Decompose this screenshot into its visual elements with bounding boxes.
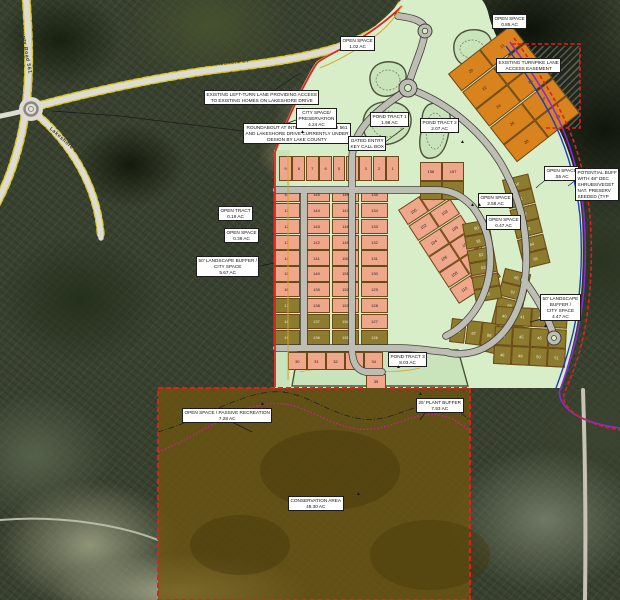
label-potential-buffer: POTENTIAL BUFFWITH 48" DECSHRUBS/VEGETNA… [575, 168, 619, 201]
label-pond-tract-3: POND TRACT 38.03 AC [388, 352, 427, 367]
label-open-space-ne: OPEN SPACE0.85 AC [492, 14, 527, 29]
label-pond-tract-2: POND TRACT 22.07 AC [420, 118, 459, 133]
label-plant-buffer: 25' PLANT BUFFER7.53 AC [416, 398, 464, 413]
label-open-space-sr: OPEN SPACE.55 AC [544, 166, 579, 181]
site-plan-map-canvas: 987654321 10111213141516171819 145144143… [0, 0, 620, 600]
tree-marker-icon: ▲ [356, 492, 361, 497]
tree-marker-icon: ▲ [470, 203, 475, 208]
tree-marker-icon: ▲ [396, 365, 401, 370]
label-open-space-passive: OPEN SPACE / PASSIVE RECREATION7.28 AC [182, 408, 272, 423]
tree-marker-icon: ▲ [543, 324, 548, 329]
label-conservation-area: CONSERVATION AREA48.30 AC [288, 496, 344, 511]
label-open-space-c1: OPEN SPACE2.58 AC [478, 193, 513, 208]
label-pond-tract-1: POND TRACT 11.98 AC [370, 112, 409, 127]
label-gated-entry: GATED ENTRYKEY CALL BOX [348, 136, 386, 151]
label-city-space: CITY SPACE/PRESERVATION4.24 AC [296, 108, 337, 129]
label-left-turn-note: EXISTING LEFT-TURN LANE PROVIDING ACCESS… [204, 90, 319, 105]
tree-marker-icon: ▲ [477, 203, 482, 208]
tree-marker-icon: ▲ [260, 402, 265, 407]
tree-marker-icon: ▲ [300, 130, 305, 135]
label-open-space-left: OPEN SPACE0.39 AC [224, 228, 259, 243]
label-open-tract: OPEN TRACT0.19 AC [218, 206, 253, 221]
label-open-space-nw: OPEN SPACE1.02 AC [340, 36, 375, 51]
tree-marker-icon: ▲ [418, 392, 423, 397]
label-buffer-right: 50' LANDSCAPEBUFFER /CITY SPACE4.47 AC [540, 294, 581, 321]
label-buffer-left: 50' LANDSCAPE BUFFER /CITY SPACE5.67 AC [196, 256, 259, 277]
label-turnpike-easement: EXISTING TURNPIKE LANEACCESS EASEMENT [496, 58, 561, 73]
boundary-lines [275, 6, 620, 430]
tree-marker-icon: ▲ [460, 140, 465, 145]
label-open-space-c2: OPEN SPACE0.47 AC [486, 215, 521, 230]
